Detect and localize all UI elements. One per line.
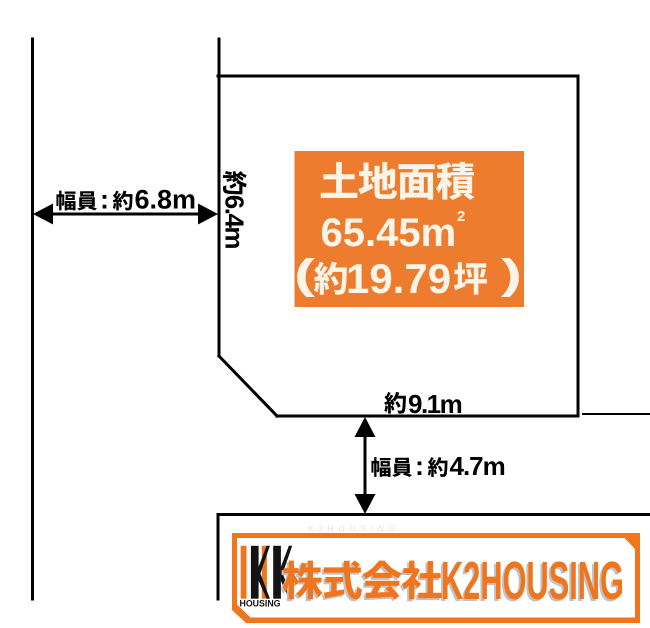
svg-text::: : [100,185,109,215]
svg-text:6.4m: 6.4m [219,195,249,249]
svg-text:K2HOUSING: K2HOUSING [308,525,400,534]
svg-text:6.8m: 6.8m [135,185,197,215]
svg-text:2: 2 [457,208,465,225]
svg-text:): ) [501,252,522,298]
svg-text:HOUSING: HOUSING [240,599,281,609]
svg-text:4.7m: 4.7m [450,451,505,481]
svg-text:19.79: 19.79 [346,255,451,302]
svg-text:(: ( [294,252,315,298]
svg-text:65.45m: 65.45m [321,211,457,255]
svg-text:9.1m: 9.1m [408,389,462,419]
svg-text::: : [415,451,424,481]
svg-text:K2HOUSING: K2HOUSING [441,551,624,611]
